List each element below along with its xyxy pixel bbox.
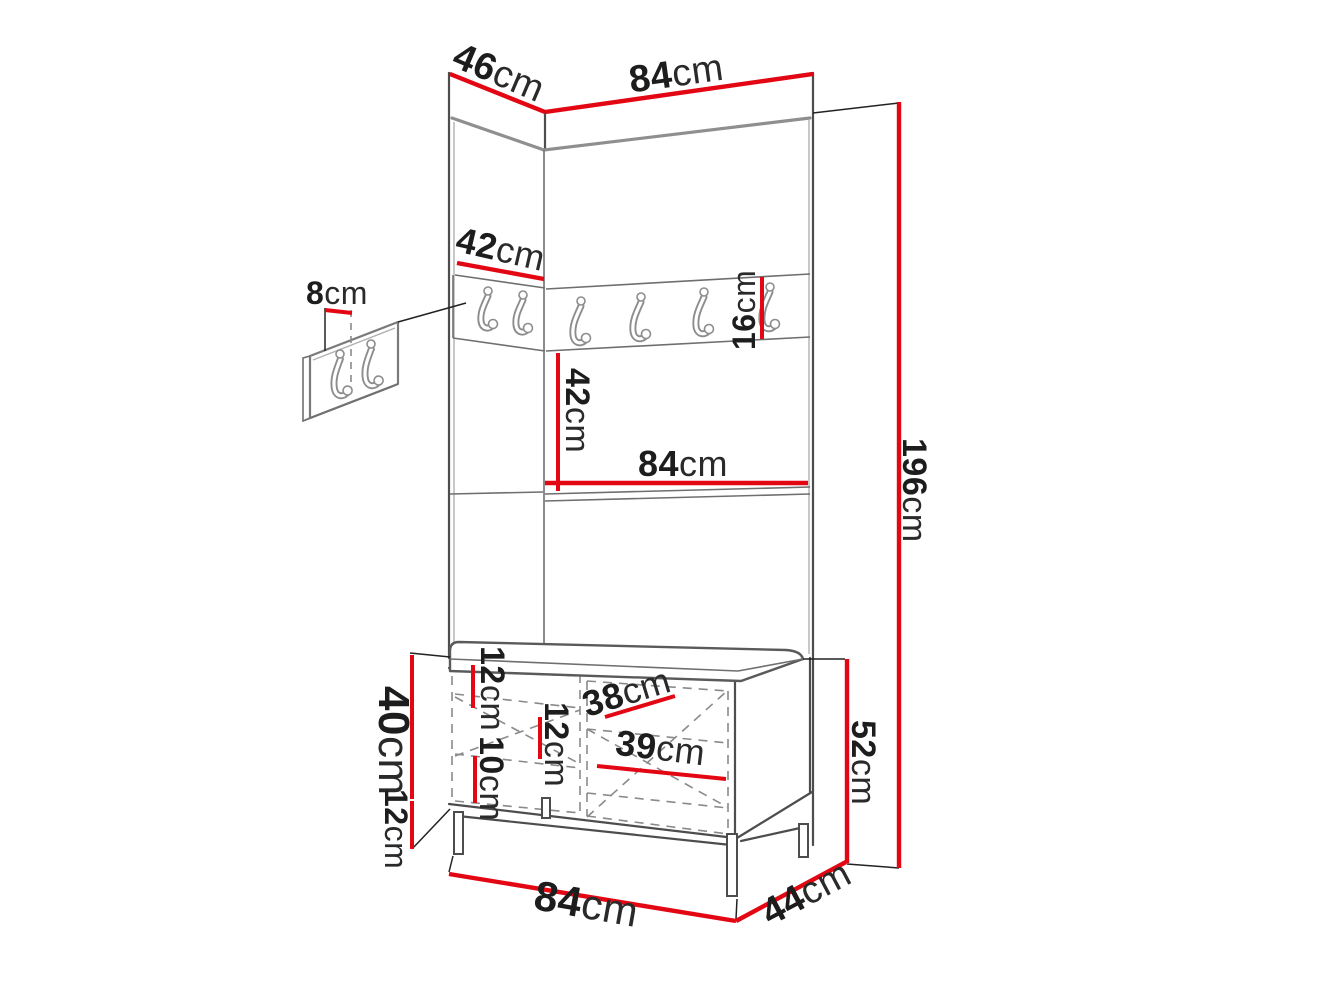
coat-hook-icon — [696, 288, 714, 334]
dim-label-leg-height: 12cm — [378, 789, 414, 869]
wall-hook-panel — [303, 303, 466, 421]
diagram-canvas: 46cm 84cm 42cm 8cm 16cm 42cm 84cm 196cm … — [0, 0, 1320, 990]
wall-panel-face — [310, 322, 398, 418]
furniture-dimension-diagram: 46cm 84cm 42cm 8cm 16cm 42cm 84cm 196cm … — [0, 0, 1320, 990]
unit-top-inner-edge — [452, 118, 810, 150]
dimension-labels: 46cm 84cm 42cm 8cm 16cm 42cm 84cm 196cm … — [306, 35, 933, 936]
bench-leg-front-left — [454, 812, 463, 854]
shelf-front-bottom-edge — [545, 494, 810, 501]
dim-label-right-door-width: 39cm — [613, 722, 707, 774]
dim-label-flap-bottom-height: 10cm — [472, 736, 510, 821]
dim-label-hook-rail-height: 16cm — [726, 270, 762, 350]
shelf-front-top-edge — [545, 487, 810, 494]
shelf-left-seam — [450, 492, 543, 494]
coat-hook-icon — [633, 293, 651, 339]
coat-hook-icon — [762, 283, 780, 329]
dim-label-top-width: 84cm — [626, 47, 726, 102]
wall-panel-pointer-line — [398, 303, 466, 322]
bench-leg-back-right — [799, 824, 808, 857]
dim-label-bench-height: 52cm — [844, 720, 882, 805]
dim-label-bench-depth: 44cm — [755, 853, 859, 935]
coat-hook-icon — [516, 291, 533, 333]
dim-label-flap-mid-height: 12cm — [537, 702, 575, 787]
dim-label-top-depth: 46cm — [447, 35, 551, 111]
bench-leg-back-left — [542, 798, 550, 818]
coat-hook-icon — [573, 297, 591, 343]
dim-label-flap-top-height: 12cm — [473, 646, 511, 731]
bench-leg-front-right — [727, 834, 737, 896]
dim-label-shelf-width: 84cm — [638, 443, 728, 484]
dim-label-total-height: 196cm — [895, 438, 933, 543]
dim-label-rail-to-shelf: 42cm — [558, 368, 596, 453]
coat-hook-icon — [481, 287, 498, 329]
dim-label-bench-width: 84cm — [531, 871, 642, 935]
rail-bottom-left-edge — [453, 338, 545, 351]
dim-label-wall-panel-width: 8cm — [306, 275, 368, 311]
dim-label-bench-body-height: 40cm — [369, 686, 418, 796]
